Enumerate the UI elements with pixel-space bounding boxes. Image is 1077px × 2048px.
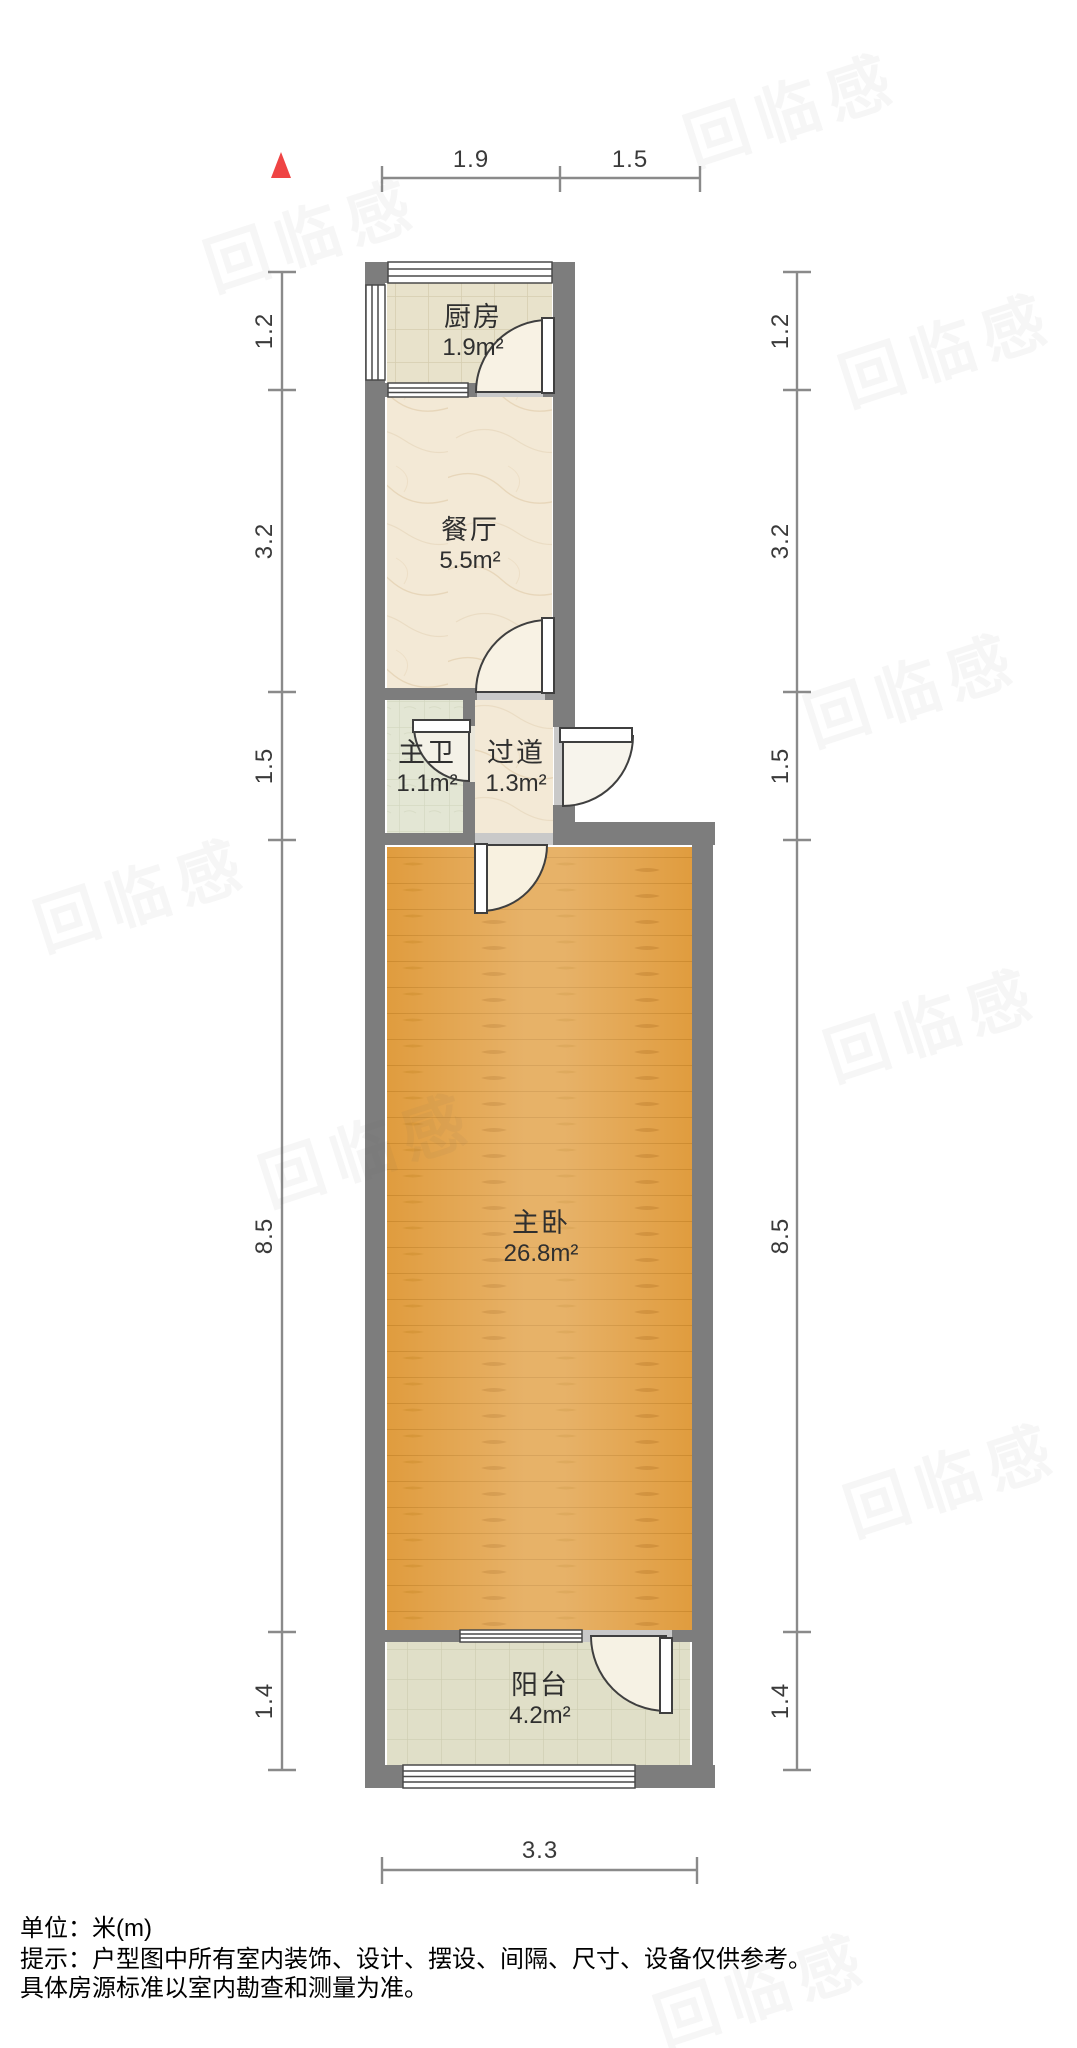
room-area: 5.5m² <box>439 546 500 575</box>
room-name: 过道 <box>485 738 546 769</box>
room-area: 4.2m² <box>509 1701 570 1730</box>
dim-label-left-2: 1.5 <box>251 748 279 784</box>
room-name: 主卧 <box>504 1208 579 1239</box>
kitchen-top-window <box>388 262 552 283</box>
room-floors <box>387 283 693 1765</box>
room-name: 阳台 <box>509 1670 570 1701</box>
left-dimension-line <box>268 272 296 1770</box>
room-name: 厨房 <box>442 302 503 333</box>
room-label-bathroom: 主卫 1.1m² <box>396 738 457 798</box>
room-area: 1.3m² <box>485 769 546 798</box>
north-arrow-icon <box>271 152 291 178</box>
bedroom-balcony-window <box>460 1630 582 1642</box>
dim-label-right-3: 8.5 <box>767 1218 795 1254</box>
room-label-kitchen: 厨房 1.9m² <box>442 302 503 362</box>
floorplan-drawing <box>0 0 1077 2048</box>
room-name: 主卫 <box>396 738 457 769</box>
kitchen-bottom-window <box>388 383 468 397</box>
dim-label-right-1: 3.2 <box>767 523 795 559</box>
dim-label-top-0: 1.9 <box>453 146 489 174</box>
dim-label-left-1: 3.2 <box>251 523 279 559</box>
footer-disclaimer-line2: 具体房源标准以室内勘查和测量为准。 <box>20 1968 428 2003</box>
room-area: 1.1m² <box>396 769 457 798</box>
dim-label-right-2: 1.5 <box>767 748 795 784</box>
room-label-dining: 餐厅 5.5m² <box>439 515 500 575</box>
room-area: 26.8m² <box>504 1239 579 1268</box>
entrance-door <box>560 728 633 806</box>
room-label-bedroom: 主卧 26.8m² <box>504 1208 579 1268</box>
balcony-bottom-window <box>403 1765 635 1788</box>
dim-label-right-4: 1.4 <box>767 1683 795 1719</box>
dim-label-right-0: 1.2 <box>767 313 795 349</box>
dim-label-left-0: 1.2 <box>251 313 279 349</box>
dim-label-left-3: 8.5 <box>251 1218 279 1254</box>
dim-label-left-4: 1.4 <box>251 1683 279 1719</box>
dim-label-bottom-0: 3.3 <box>522 1837 558 1865</box>
room-label-balcony: 阳台 4.2m² <box>509 1670 570 1730</box>
kitchen-left-window <box>366 285 385 380</box>
room-label-hallway: 过道 1.3m² <box>485 738 546 798</box>
top-dimension-line <box>382 166 700 192</box>
dim-label-top-1: 1.5 <box>612 146 648 174</box>
right-dimension-line <box>783 272 811 1770</box>
room-area: 1.9m² <box>442 333 503 362</box>
footer-unit-note: 单位：米(m) <box>20 1908 152 1943</box>
floorplan-canvas: 回临感 回临感 回临感 回临感 回临感 回临感 回临感 回临感 回临感 1.9 … <box>0 0 1077 2048</box>
room-name: 餐厅 <box>439 515 500 546</box>
